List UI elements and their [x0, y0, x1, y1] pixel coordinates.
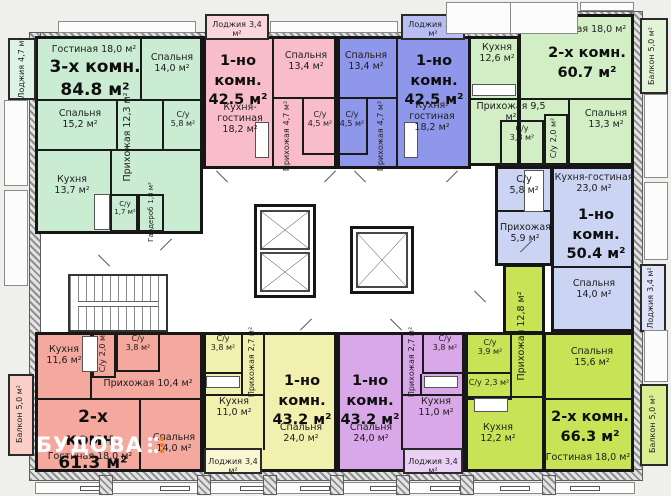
room-label-loggia: Лоджия3,4 м² — [207, 20, 267, 39]
exterior-balcony — [644, 330, 668, 382]
room-label-prihozhaya: Прихожая5,9 м² — [500, 222, 550, 244]
room-label-loggia: Лоджия3,4 м² — [643, 267, 659, 329]
exterior-balcony — [270, 21, 398, 33]
pier — [198, 476, 210, 494]
room-label-su: С/у2,0 м² — [546, 114, 562, 162]
room-label-prihozhaya: Прихожая4,7 м² — [373, 105, 389, 167]
room-label-spalnya: Спальня14,0 м² — [146, 52, 198, 74]
room-label-kuhnya-gostinaya: Кухня-гостиная23,0 м² — [554, 172, 634, 194]
elevator-car-1 — [260, 210, 310, 250]
wall — [35, 149, 203, 151]
room-label-loggia: Лоджия4,7 м² — [14, 39, 30, 97]
wall — [162, 99, 164, 151]
room-label-prihozhaya: Прихожая4,7 м² — [279, 105, 295, 167]
pier — [397, 476, 409, 494]
kitchen-fixture — [424, 376, 458, 388]
room-label-prihozhaya: Прихожая10,4 м² — [96, 378, 200, 389]
floor-plan: Гостиная18,0 м² 3-х комн.84.8 м² Спальня… — [0, 0, 671, 496]
exterior-balcony — [4, 190, 28, 286]
room-label-su: С/у3,8 м² — [120, 334, 156, 353]
room-label-gostinaya: Гостиная18,0 м² — [48, 44, 140, 55]
budova-logo-dots-icon — [148, 437, 164, 453]
room-label-su: С/у3,8 м² — [428, 334, 462, 353]
room-label-spalnya: Спальня13,4 м² — [340, 50, 392, 72]
room-label-su: С/у5,8 м² — [500, 174, 548, 196]
exterior-balcony — [58, 21, 196, 33]
elevator-car-2 — [260, 252, 310, 292]
window — [370, 486, 400, 491]
wall — [302, 153, 337, 155]
elevator-car-3 — [356, 232, 408, 288]
room-label-garderob: Гардероб1,8 м² — [143, 187, 159, 237]
window — [570, 486, 600, 491]
wall — [337, 153, 368, 155]
room-label-su: С/у3,8 м² — [206, 334, 240, 353]
apartment-title-50-4: 1-но комн.50.4 м² — [558, 206, 634, 265]
wall — [366, 99, 368, 155]
window — [300, 486, 330, 491]
room-label-loggia: Лоджия3,4 м² — [404, 457, 462, 476]
room-label-prihozhaya: Прихожая9,5 м² — [472, 101, 550, 123]
stair-rail — [78, 301, 159, 307]
pier — [100, 476, 112, 494]
kitchen-fixture — [474, 398, 508, 412]
kitchen-fixture — [472, 84, 516, 96]
room-label-gostinaya: Гостиная18,0 м² — [542, 452, 634, 463]
room-label-balkon: Балкон5,0 м² — [12, 378, 28, 450]
room-label-su: С/у1,7 м² — [112, 200, 138, 217]
room-label-spalnya: Спальня14,0 м² — [564, 278, 624, 300]
budova-watermark: БУДОВА — [36, 433, 164, 457]
room-label-kuhnya: Кухня11,0 м² — [410, 396, 462, 418]
stairwell — [68, 274, 168, 332]
room-label-kuhnya: Кухня11,0 м² — [208, 396, 260, 418]
room-label-spalnya: Спальня24,0 м² — [272, 422, 330, 444]
pier — [264, 476, 276, 494]
window — [430, 486, 460, 491]
room-label-su: С/у4,5 м² — [338, 110, 366, 129]
wall — [272, 97, 337, 99]
room-label-su: С/у5,8 м² — [168, 110, 198, 129]
room-label-spalnya: Спальня13,4 м² — [280, 50, 332, 72]
room-label-prihozhaya: Прихожая12,8 м² — [514, 274, 530, 398]
apartment-title-60-7: 2-х комн.60.7 м² — [546, 44, 628, 83]
room-label-prihozhaya: Прихожая2,7 м² — [244, 327, 260, 397]
window — [160, 486, 190, 491]
wall — [568, 100, 570, 166]
room-label-su: С/у4,5 м² — [306, 110, 334, 129]
room-label-kuhnya: Кухня11,6 м² — [38, 344, 90, 366]
room-label-balkon: Балкон5,0 м² — [645, 388, 661, 460]
pier — [543, 476, 555, 494]
wall — [302, 99, 304, 155]
room-label-prihozhaya: Прихожая12,3 м² — [120, 93, 136, 181]
exterior-balcony — [510, 2, 578, 34]
room-label-kuhnya-gostinaya: Кухня-гостиная18,2 м² — [398, 100, 466, 134]
wall — [551, 266, 634, 268]
room-label-kuhnya: Кухня12,6 м² — [476, 42, 518, 64]
room-label-su: С/у2,0 м² — [95, 330, 111, 374]
wall — [420, 374, 422, 396]
room-label-su: С/у3,8 м² — [506, 124, 538, 143]
exterior-balcony — [446, 2, 512, 34]
exterior-balcony — [580, 2, 634, 11]
exterior-balcony — [4, 100, 28, 186]
exterior-balcony — [644, 182, 668, 260]
room-label-su: С/у2,3 м² — [464, 378, 514, 387]
wall — [241, 374, 243, 396]
wall — [35, 398, 203, 400]
budova-logo-text: БУДОВА — [36, 433, 143, 457]
wall — [263, 332, 265, 450]
room-label-spalnya: Спальня15,2 м² — [46, 108, 114, 130]
wall — [116, 99, 118, 151]
room-label-spalnya: Спальня13,3 м² — [580, 108, 632, 130]
pier — [461, 476, 473, 494]
room-label-loggia: Лоджия3,4 м² — [205, 457, 261, 476]
room-label-kuhnya: Кухня12,2 м² — [472, 422, 524, 444]
room-label-prihozhaya: Прихожая2,7 м² — [404, 327, 420, 397]
wall — [470, 98, 634, 100]
room-label-kuhnya: Кухня13,7 м² — [44, 174, 100, 196]
room-label-balkon: Балкон5,0 м² — [644, 22, 660, 90]
room-label-kuhnya-gostinaya: Кухня-гостиная18,2 м² — [206, 102, 274, 136]
room-label-su: С/у3,9 м² — [470, 338, 510, 357]
room-label-spalnya: Спальня15,6 м² — [562, 346, 622, 368]
wall — [543, 398, 634, 400]
kitchen-fixture — [206, 376, 240, 388]
kitchen-fixture — [94, 194, 110, 230]
apartment-title-66-3: 2-х комн.66.3 м² — [548, 408, 632, 447]
room-label-spalnya: Спальня24,0 м² — [342, 422, 400, 444]
exterior-balcony — [644, 94, 668, 178]
window — [500, 486, 530, 491]
pier — [331, 476, 343, 494]
